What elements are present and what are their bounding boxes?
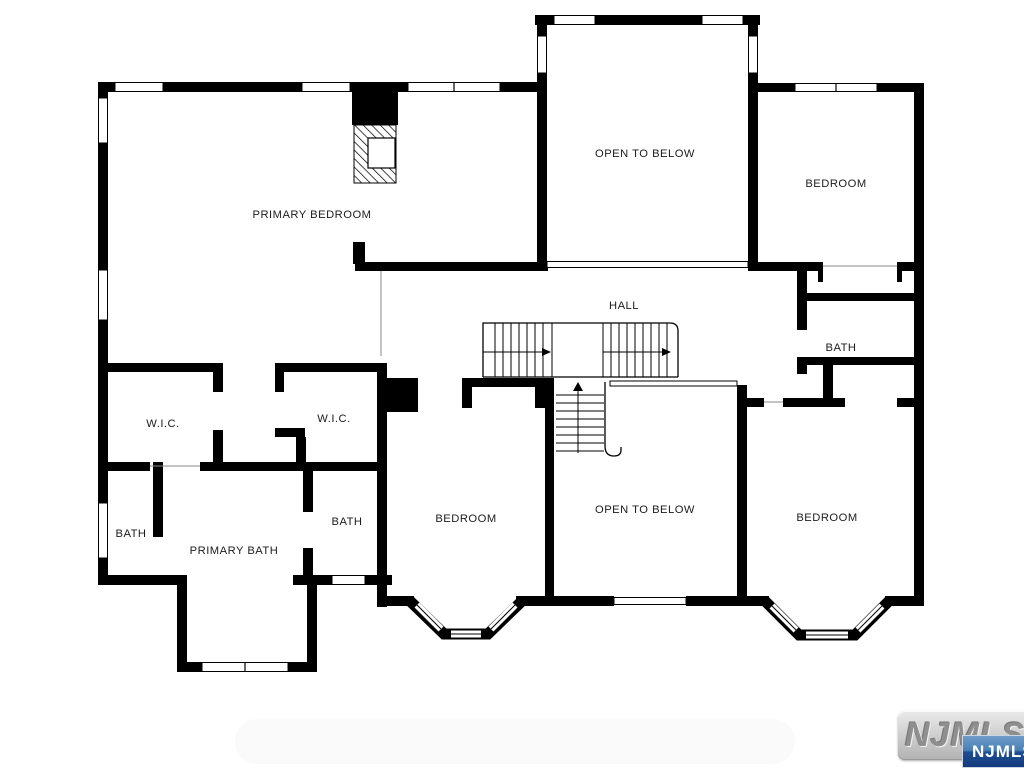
windows xyxy=(99,16,878,672)
room-label-wic-right: W.I.C. xyxy=(317,413,350,425)
floor-plan-drawing: PRIMARY BEDROOM OPEN TO BELOW BEDROOM HA… xyxy=(0,0,1024,768)
door-openings xyxy=(150,266,897,466)
room-label-open-to-below-bottom: OPEN TO BELOW xyxy=(595,504,695,516)
room-label-primary-bath: PRIMARY BATH xyxy=(190,545,279,557)
bay-window-bottom-middle xyxy=(410,601,522,634)
room-label-hall: HALL xyxy=(609,300,639,312)
room-label-open-to-below-top: OPEN TO BELOW xyxy=(595,148,695,160)
room-label-bedroom-bottom-middle: BEDROOM xyxy=(435,513,496,525)
room-label-primary-bedroom: PRIMARY BEDROOM xyxy=(253,209,372,221)
room-label-bath-right: BATH xyxy=(825,342,856,354)
room-label-bedroom-top-right: BEDROOM xyxy=(805,178,866,190)
njmls-logo-badge: NJMLS xyxy=(962,735,1024,768)
room-label-wic-left: W.I.C. xyxy=(146,418,179,430)
floor-plan-page: PRIMARY BEDROOM OPEN TO BELOW BEDROOM HA… xyxy=(0,0,1024,768)
railings xyxy=(547,262,748,387)
njmls-badge-text: NJMLS xyxy=(972,742,1024,761)
staircase xyxy=(483,323,678,456)
fireplace xyxy=(352,85,398,183)
room-label-bath-left: BATH xyxy=(115,528,146,540)
watermark-smudge xyxy=(235,719,795,764)
room-label-bath-middle: BATH xyxy=(331,516,362,528)
bay-window-bottom-right xyxy=(765,601,889,635)
chimney xyxy=(382,378,418,412)
room-label-bedroom-bottom-right: BEDROOM xyxy=(796,512,857,524)
